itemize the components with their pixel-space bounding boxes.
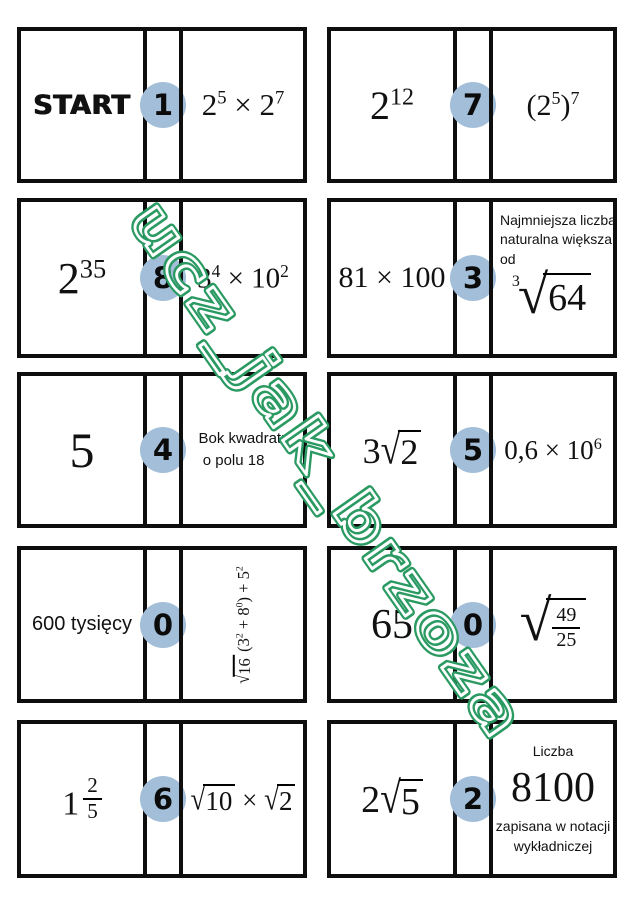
card-left-value: 65 [371,601,413,649]
card-right-cell: 34 × 102 [183,202,303,354]
card-left-value: 5 [70,421,95,479]
card-right-cell: √4925 [493,550,613,699]
card-left-cell: 65 [331,550,453,699]
domino-card-9: 125 √10 × √2 6 [17,720,307,878]
card-right-value: 3√64 [510,273,591,323]
card-right-value: (25)7 [527,88,580,123]
card-right-cell: (25)7 [493,31,613,179]
card-left-cell: 600 tysięcy [21,550,143,699]
card-right-cell: 25 × 27 [183,31,303,179]
card-right-value: √16 (32 + 80) + 52 [232,566,254,684]
card-left-cell: 212 [331,31,453,179]
card-right-value: √4925 [520,598,587,651]
card-left-cell: 5 [21,376,143,524]
card-right-question-text: Najmniejsza liczbanaturalna większaod [500,211,613,269]
card-right-cell: Najmniejsza liczbanaturalna większaod 3√… [493,202,613,354]
card-left-cell: 125 [21,724,143,874]
card-right-value: Bok kwadratu o polu 18 [197,428,290,472]
card-right-value: 0,6 × 106 [504,435,602,466]
card-right-cell: √10 × √2 [183,724,303,874]
card-left-value: 3√2 [363,429,422,472]
card-right-label-top: Liczba [533,742,573,762]
card-left-value: START [33,90,130,121]
card-left-cell: START [21,31,143,179]
domino-card-8: 65 √4925 0 [327,546,617,703]
card-left-value: 600 tysięcy [32,613,132,636]
domino-card-2: 212 (25)7 7 [327,27,617,183]
domino-card-4: 81 × 100 Najmniejsza liczbanaturalna wię… [327,198,617,358]
domino-card-5: 5 Bok kwadratu o polu 18 4 [17,372,307,528]
card-left-value: 81 × 100 [339,261,446,295]
card-left-value: 212 [370,82,414,129]
card-left-value: 235 [58,253,106,304]
domino-card-3: 235 34 × 102 8 [17,198,307,358]
card-right-cell: 0,6 × 106 [493,376,613,524]
domino-card-10: 2√5 Liczba 8100 zapisana w notacjiwykład… [327,720,617,878]
card-left-cell: 2√5 [331,724,453,874]
card-right-cell: Bok kwadratu o polu 18 [183,376,303,524]
domino-card-1: START 25 × 27 1 [17,27,307,183]
card-right-cell: Liczba 8100 zapisana w notacjiwykładnicz… [493,724,613,874]
card-right-value: 8100 [511,764,595,812]
card-right-value: 25 × 27 [202,87,285,123]
card-right-value: 34 × 102 [197,261,289,296]
card-right-cell: √16 (32 + 80) + 52 [183,550,303,699]
card-right-label-bottom: zapisana w notacjiwykładniczej [496,817,610,856]
domino-card-6: 3√2 0,6 × 106 5 [327,372,617,528]
card-left-cell: 3√2 [331,376,453,524]
card-right-value: √10 × √2 [191,783,296,816]
card-left-value: 125 [62,774,102,823]
domino-card-7: 600 tysięcy √16 (32 + 80) + 52 0 [17,546,307,703]
card-left-cell: 235 [21,202,143,354]
card-left-cell: 81 × 100 [331,202,453,354]
card-left-value: 2√5 [361,777,423,822]
domino-worksheet: { "theme": { "badge_color": "#a3bed8", "… [0,0,636,900]
